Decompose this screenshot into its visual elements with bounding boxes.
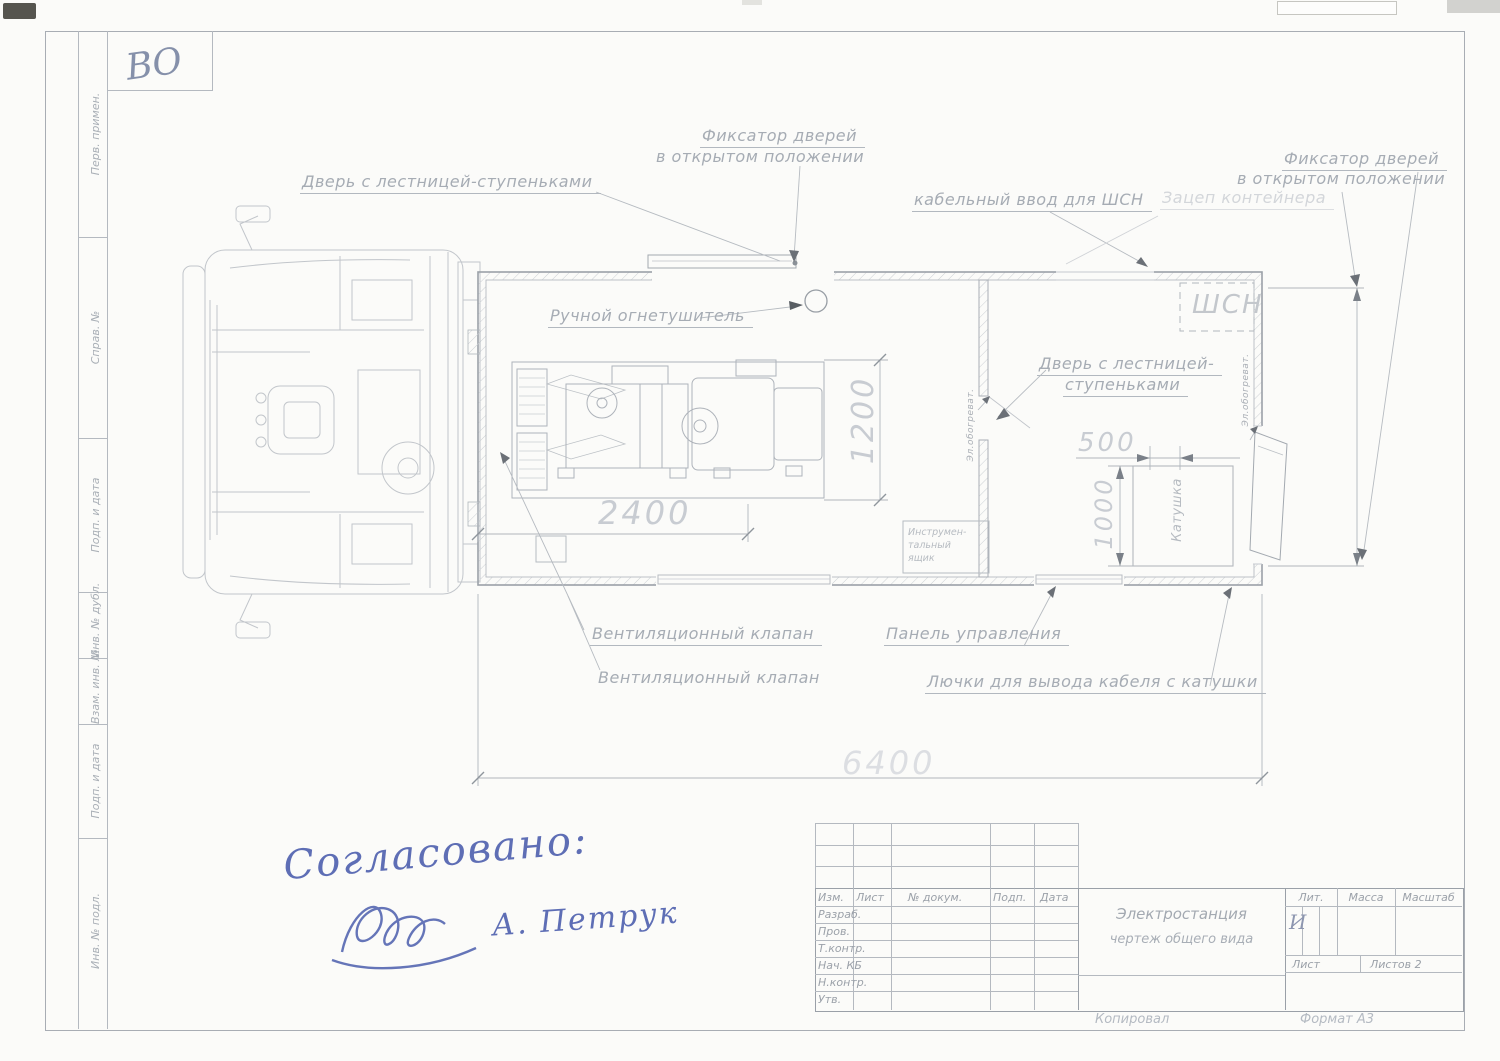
tb-doc-subtitle: чертеж общего вида	[1078, 932, 1285, 947]
extinguisher-symbol	[805, 290, 827, 312]
scanned-drawing-page: Перв. примен. Справ. № Подп. и дата Инв.…	[0, 0, 1500, 1061]
tb-scale-label: Масштаб	[1395, 891, 1462, 904]
tb-row-utv: Утв.	[818, 993, 841, 1006]
tb-sheet: Лист	[1292, 958, 1320, 971]
tb-row-prov: Пров.	[818, 925, 850, 938]
titleblock-ext-grid	[815, 866, 1078, 867]
titleblock-ext-grid	[815, 823, 1078, 824]
titleblock-ext-grid	[853, 823, 854, 888]
reel-label: Катушка	[1170, 468, 1185, 552]
callout-latch-top-line2: в открытом положении	[656, 147, 864, 166]
dim-genset-length: 2400	[598, 494, 691, 532]
callout-door-right-line1: Дверь с лестницей-	[1037, 354, 1222, 376]
callout-control-panel: Панель управления	[884, 624, 1069, 646]
titleblock-ext-grid	[1034, 823, 1035, 888]
tb-lit-label: Лит.	[1285, 891, 1337, 904]
callout-latch-top-line1: Фиксатор дверей	[700, 126, 865, 148]
dim-reel-width: 1000	[1090, 464, 1118, 562]
open-door-leaf-right	[1250, 432, 1287, 560]
titleblock-ext-grid	[815, 823, 816, 888]
titleblock-line	[1360, 955, 1361, 972]
tb-row-nachkb: Нач. КБ	[818, 959, 862, 972]
tb-col-data: Дата	[1040, 891, 1068, 904]
dim-reel-gap: 500	[1078, 428, 1137, 458]
titleblock-line	[1285, 972, 1462, 973]
toolbox-label-line3: ящик	[908, 552, 966, 565]
tb-col-list: Лист	[856, 891, 884, 904]
heater-label-right: Эл.обогреват.	[1241, 350, 1251, 430]
genset-top-view	[512, 360, 824, 498]
leader-lines	[502, 166, 1418, 686]
tb-mass-label: Масса	[1337, 891, 1395, 904]
tb-doc-title: Электростанция	[1078, 905, 1285, 923]
callout-latch-right-line1: Фиксатор дверей	[1282, 149, 1447, 171]
tb-sheets: Листов 2	[1370, 958, 1422, 971]
callout-door-left: Дверь с лестницей-ступеньками	[300, 172, 601, 194]
callout-cable-hatches: Лючки для вывода кабеля с катушки	[925, 672, 1266, 694]
small-box-outline	[536, 536, 566, 562]
callout-extinguisher: Ручной огнетушитель	[548, 306, 753, 328]
titleblock-line	[815, 940, 1078, 941]
signature-scribble	[332, 907, 476, 968]
dim-genset-width: 1200	[846, 358, 881, 482]
tb-row-tkontr: Т.контр.	[818, 942, 866, 955]
callout-cable-entry: кабельный ввод для ШСН	[912, 190, 1152, 212]
titleblock-line	[1285, 955, 1462, 956]
titleblock-line	[815, 906, 1078, 907]
titleblock-line	[815, 923, 1078, 924]
titleblock-line	[815, 974, 1078, 975]
callout-door-right-line2: ступеньками	[1063, 375, 1188, 397]
partition-wall	[979, 280, 1030, 577]
truck-cab-top-view	[183, 206, 480, 638]
tb-col-podp: Подп.	[993, 891, 1026, 904]
tb-row-nkontr: Н.контр.	[818, 976, 867, 989]
callout-vent-valve-1: Вентиляционный клапан	[590, 624, 822, 646]
titleblock-ext-grid	[1078, 823, 1079, 888]
dimension-arrows	[1116, 288, 1361, 566]
titleblock-ext-grid	[990, 823, 991, 888]
tb-lit-value: И	[1289, 910, 1306, 934]
callout-vent-valve-2: Вентиляционный клапан	[598, 668, 820, 687]
titleblock-line	[815, 991, 1078, 992]
callout-container-hook: Зацеп контейнера	[1160, 188, 1334, 210]
callout-latch-right-line2: в открытом положении	[1237, 169, 1445, 188]
shsn-cabinet-label: ШСН	[1192, 290, 1264, 320]
titleblock-line	[815, 957, 1078, 958]
copied-by: Копировал	[1095, 1012, 1169, 1027]
tb-col-izm: Изм.	[818, 891, 844, 904]
sheet-format: Формат А3	[1300, 1012, 1374, 1027]
open-door-leaf-top	[648, 255, 798, 268]
tb-row-razrab: Разраб.	[818, 908, 861, 921]
titleblock-line	[1285, 906, 1462, 907]
titleblock-line	[1319, 906, 1320, 955]
toolbox-label-line2: тальный	[908, 539, 966, 552]
titleblock-line	[1078, 975, 1285, 976]
titleblock-ext-grid	[815, 845, 1078, 846]
heater-label-left: Эл.обогреват.	[966, 386, 976, 464]
dim-overall-length: 6400	[842, 744, 935, 782]
titleblock-ext-grid	[891, 823, 892, 888]
tb-col-doc: № докум.	[908, 891, 962, 904]
toolbox-label: Инструмен- тальный ящик	[908, 526, 966, 565]
toolbox-label-line1: Инструмен-	[908, 526, 966, 539]
